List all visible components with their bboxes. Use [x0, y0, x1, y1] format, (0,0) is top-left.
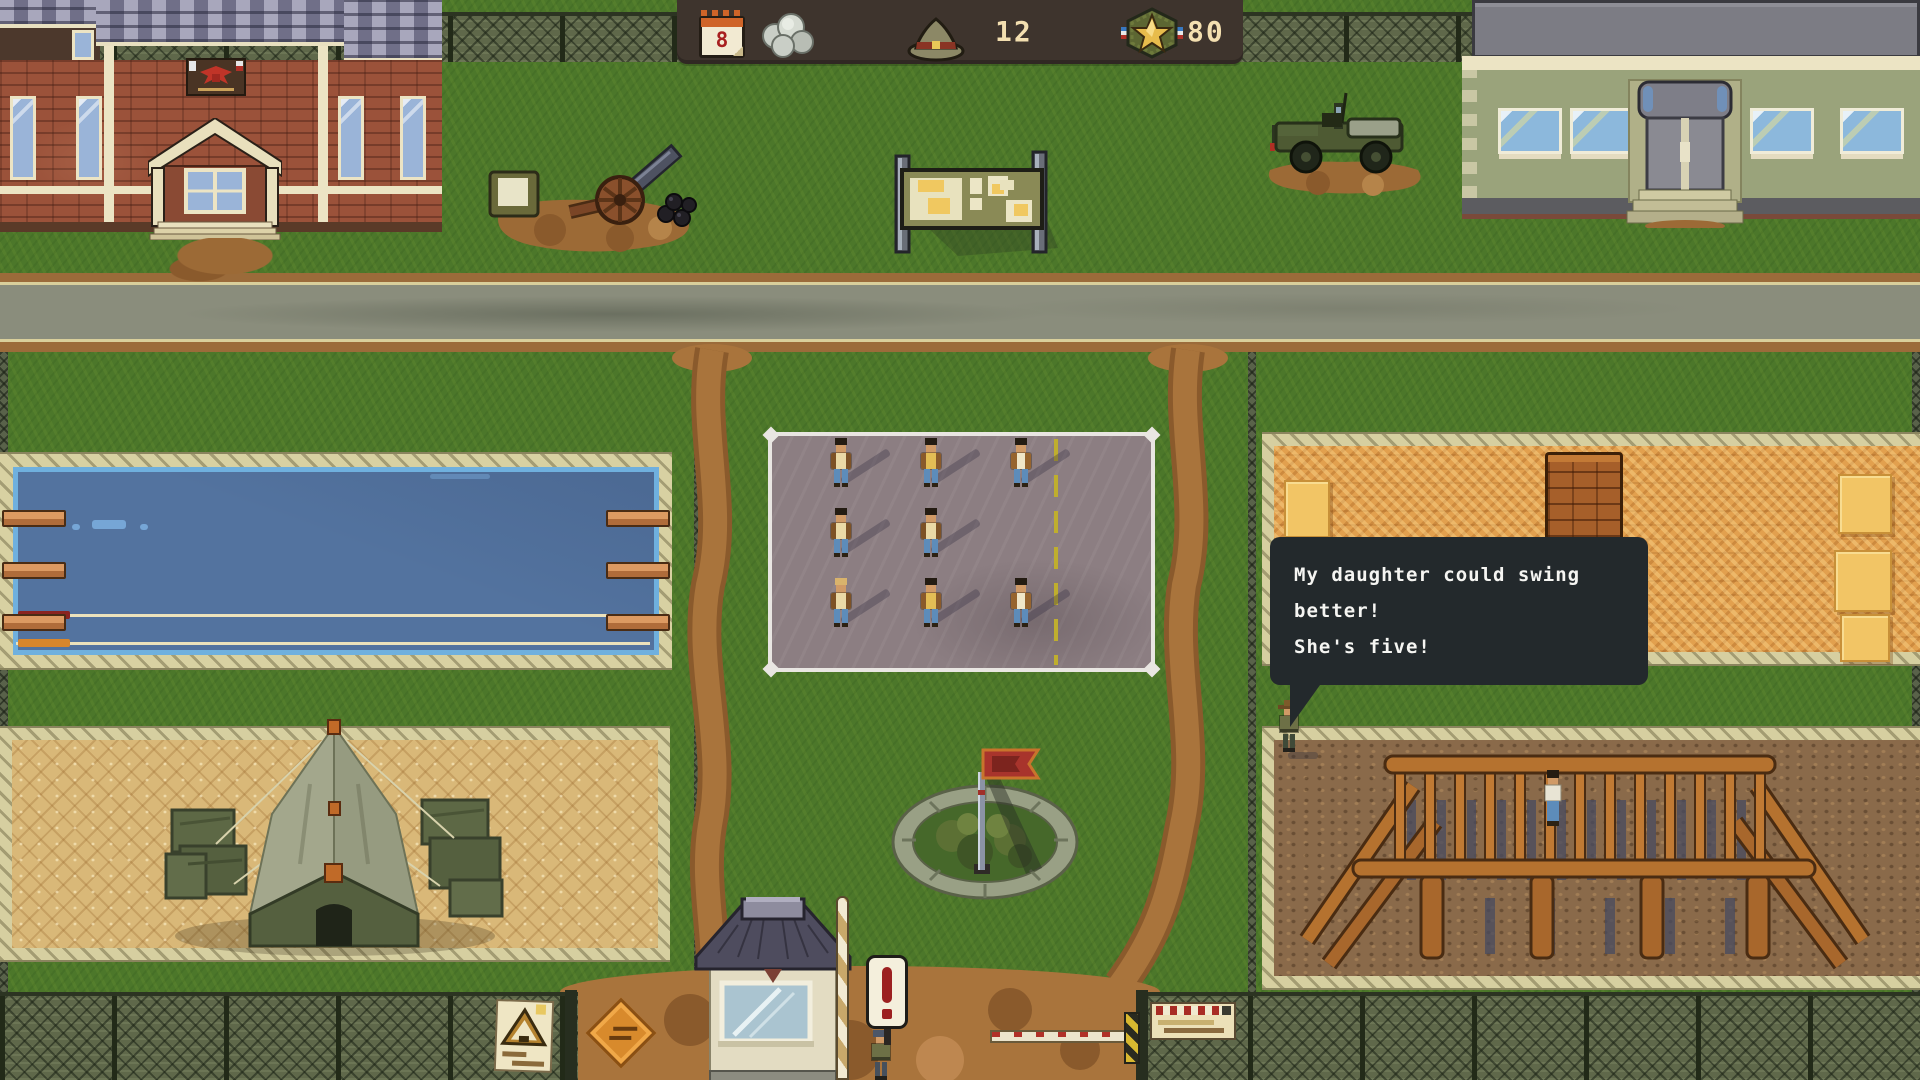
recruit-face	[836, 585, 846, 593]
hat-stat-value: 12	[995, 15, 1033, 48]
office-window	[1498, 108, 1562, 154]
hq-window	[400, 96, 426, 180]
recruit[interactable]	[1008, 578, 1034, 628]
recruit-torso	[921, 523, 941, 539]
recruit-face	[836, 445, 846, 453]
guard-legs	[875, 1062, 887, 1076]
exclamation-sign-post	[884, 1029, 891, 1045]
recruit-torso	[1011, 593, 1031, 609]
hq-entrance-dirt	[160, 238, 290, 282]
guard-torso	[872, 1044, 890, 1060]
flag-monument[interactable]	[880, 740, 1090, 920]
calendar-fold	[733, 46, 743, 56]
monkey-bars[interactable]	[1295, 748, 1875, 988]
gate-notice-sign	[1150, 1002, 1236, 1040]
guard-post[interactable]	[688, 895, 858, 1080]
recruit[interactable]	[918, 578, 944, 628]
recruit[interactable]	[918, 438, 944, 488]
exclamation-sign	[866, 955, 908, 1029]
gate-post-left	[565, 990, 577, 1080]
recruit-hair	[1015, 438, 1027, 445]
gate-barrier-arm[interactable]	[990, 1030, 1136, 1043]
speech-bubble: My daughter could swing better! She's fi…	[1270, 537, 1648, 685]
recruit-face	[926, 515, 936, 523]
recruit-face	[926, 445, 936, 453]
gate-barrier-pole[interactable]	[836, 896, 849, 1080]
diving-platform[interactable]	[606, 510, 670, 527]
recruit-face	[1016, 445, 1026, 453]
sergeant-feet	[1283, 748, 1295, 752]
office-window	[1840, 108, 1904, 154]
hq-eagle-banner	[186, 58, 246, 96]
recruit-feet	[924, 553, 938, 557]
star-medal-icon[interactable]	[1121, 7, 1183, 59]
boot-camp-map: 8 12	[0, 0, 1920, 1080]
recruit-face	[926, 585, 936, 593]
recruit-feet	[834, 483, 848, 487]
recruit[interactable]	[918, 508, 944, 558]
recruit-legs	[834, 539, 848, 553]
recruit-legs	[1014, 469, 1028, 483]
hq-pilaster	[104, 46, 114, 230]
recruit-torso	[921, 593, 941, 609]
speech-line-2: She's five!	[1294, 629, 1624, 665]
recruit-feet	[1014, 483, 1028, 487]
recruit-torso	[831, 453, 851, 469]
diving-platform[interactable]	[606, 614, 670, 631]
speech-line-1: My daughter could swing better!	[1294, 557, 1624, 629]
recruit-hair	[925, 508, 937, 515]
cannon-monument[interactable]	[470, 110, 710, 260]
star-stat-value: 80	[1187, 15, 1225, 48]
office-roof	[1472, 0, 1920, 58]
diving-platform[interactable]	[2, 510, 66, 527]
hq-pilaster	[318, 46, 328, 230]
diving-platform[interactable]	[2, 562, 66, 579]
sergeant-legs	[1283, 734, 1295, 748]
hq-roof-center	[96, 0, 344, 46]
recruit-legs	[924, 469, 938, 483]
guard-feet	[875, 1076, 887, 1080]
diving-platform[interactable]	[606, 562, 670, 579]
recruit[interactable]	[828, 438, 854, 488]
calendar-icon[interactable]: 8	[699, 16, 745, 58]
drill-hat-icon[interactable]	[905, 16, 967, 62]
sergeant-shadow	[1288, 752, 1318, 759]
hud-bar: 8 12	[677, 0, 1243, 64]
office-fascia	[1462, 56, 1920, 70]
recruit-legs	[924, 609, 938, 623]
office-window	[1750, 108, 1814, 154]
hq-porch	[148, 118, 282, 240]
weather-clouds-icon[interactable]	[755, 12, 817, 60]
supply-tent[interactable]	[150, 714, 510, 964]
recruit-face	[1016, 585, 1026, 593]
recruit-feet	[834, 623, 848, 627]
recruit-hair	[925, 578, 937, 585]
recruit-torso	[921, 453, 941, 469]
recruit-legs	[834, 609, 848, 623]
recruit-torso	[831, 523, 851, 539]
recruit-torso	[1011, 453, 1031, 469]
hq-window	[76, 96, 102, 180]
recruit-hair	[1015, 578, 1027, 585]
hq-window	[10, 96, 36, 180]
recruit-hair	[925, 438, 937, 445]
recruit-feet	[1014, 623, 1028, 627]
military-jeep[interactable]	[1258, 85, 1428, 200]
recruit-hair	[835, 438, 847, 445]
hq-roof-left	[0, 0, 100, 28]
notice-board[interactable]	[888, 128, 1058, 258]
recruit[interactable]	[828, 578, 854, 628]
recruit-legs	[834, 469, 848, 483]
warning-sign	[494, 999, 554, 1073]
hq-attic-window	[72, 30, 94, 60]
diving-platform[interactable]	[2, 614, 66, 631]
hq-roof-right	[344, 0, 442, 62]
recruit-face	[836, 515, 846, 523]
headquarters-building[interactable]	[0, 0, 442, 282]
recruit[interactable]	[828, 508, 854, 558]
perimeter-fence-bottom-left	[0, 992, 578, 1080]
recruit-legs	[924, 539, 938, 553]
office-building[interactable]	[1462, 0, 1920, 230]
diamond-sign-text-line	[613, 1027, 637, 1031]
recruit-feet	[834, 553, 848, 557]
recruit-hair	[835, 578, 847, 585]
recruit-legs	[1014, 609, 1028, 623]
perimeter-fence-bottom-right	[1136, 992, 1920, 1080]
recruit-hair	[835, 508, 847, 515]
recruit-feet	[924, 483, 938, 487]
gate-hazard-post	[1124, 1012, 1140, 1064]
office-entrance[interactable]	[1625, 76, 1745, 228]
recruit-torso	[831, 593, 851, 609]
recruit[interactable]	[1008, 438, 1034, 488]
recruit-feet	[924, 623, 938, 627]
hq-window	[338, 96, 364, 180]
office-quoins	[1462, 70, 1477, 198]
calendar-header	[701, 18, 743, 27]
diamond-sign-text-line	[609, 1036, 631, 1040]
